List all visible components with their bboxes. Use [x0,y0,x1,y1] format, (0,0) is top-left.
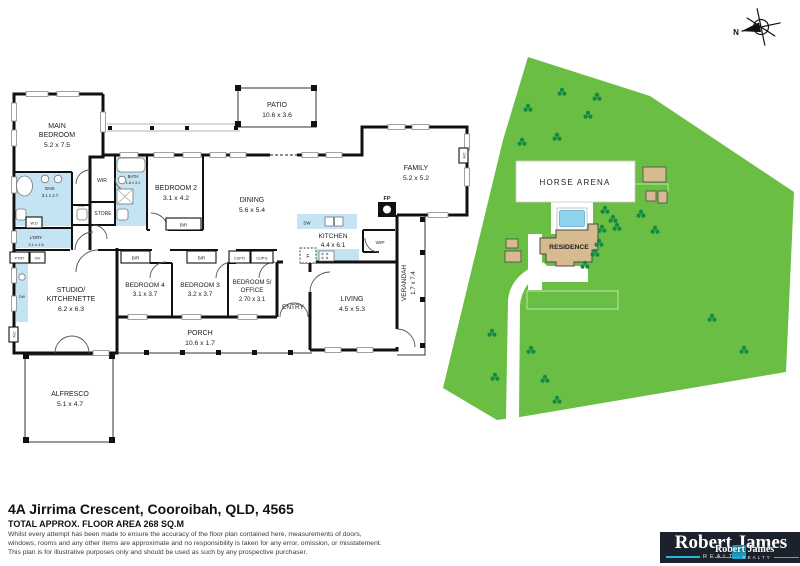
bedroom4-dims: 3.1 x 3.7 [133,291,158,298]
wd-label: W.D [31,222,38,226]
bedroom5-label-2: OFFICE [241,287,264,294]
disclaimer-line: Whilst every attempt has been made to en… [8,530,382,539]
cupd2-label: CUP'D [256,257,267,261]
ac-left-label: A/C [13,331,17,338]
laundry-dims: 3.1 x 1.6 [28,242,44,247]
studio-label-2: KITCHENETTE [47,296,96,303]
agency-logo: Robert James REALTY Robert James REALTY [660,532,800,563]
fp-label: FP [383,196,390,202]
kitchen-dims: 4.4 x 6.1 [321,242,346,249]
floor-area-note: TOTAL APPROX. FLOOR AREA 268 SQ.M [8,519,184,529]
bedroom5-label-1: BEDROOM 5/ [233,279,272,286]
wip-label: WIP [375,240,384,246]
bir-bed2-label: BIR [180,223,188,228]
floor-plan: MAIN BEDROOM 5.2 x 7.5 PATIO 10.6 x 3.6 … [9,85,470,443]
verandah-label: VERANDAH [401,265,408,301]
logo-rule [774,557,799,559]
alfresco-dims: 5.1 x 4.7 [57,401,83,408]
disclaimer: Whilst every attempt has been made to en… [8,530,382,558]
open-structures [25,88,425,442]
bedroom5-dims: 2.70 x 3.1 [239,297,266,303]
studio-label-1: STUDIO/ [57,287,85,294]
laundry-label: L'DRY [30,235,43,240]
verandah-dims: 1.7 x 7.4 [410,271,417,295]
kitchen-label: KITCHEN [319,233,348,240]
main-bedroom-label-1: MAIN [48,123,66,130]
bir-bed3-label: BIR [198,256,206,261]
property-address: 4A Jirrima Crescent, Cooroibah, QLD, 456… [8,501,294,517]
family-label: FAMILY [404,165,429,172]
ens-label: ENS [45,186,54,191]
bedroom4-label: BEDROOM 4 [125,282,165,289]
ac-right-label: A/C [463,152,467,159]
compass-north-label: N [733,28,739,37]
disclaimer-line: This plan is for illustrative purposes o… [8,548,382,557]
agency-logo-small: Robert James REALTY [715,544,799,560]
store-label: STORE [94,211,112,217]
porch-dims: 10.6 x 1.7 [185,340,215,347]
pool [557,208,587,230]
site-boundary [443,57,794,420]
fridge-label: F [306,254,309,260]
living-label: LIVING [341,296,364,303]
horse-arena-label: HORSE ARENA [540,178,611,187]
wir-label: WIR [97,178,107,184]
patio-label: PATIO [267,102,288,109]
bedroom3-label: BEDROOM 3 [180,282,220,289]
logo-rule [715,557,740,559]
bath-label: BATH [128,174,139,179]
logo-rule [666,556,700,558]
ptry-label: P'TRY [15,257,25,261]
agency-logo-small-tagline-row: REALTY [715,555,799,560]
bedroom2-label: BEDROOM 2 [155,185,197,192]
family-dims: 5.2 x 5.2 [403,175,429,182]
alfresco-label: ALFRESCO [51,391,89,398]
dw-island-label: DW [304,221,311,226]
disclaimer-line: windows, rooms and any other items are a… [8,539,382,548]
cupd1-label: CUP'D [234,257,245,261]
bir-bed4-label: BIR [132,256,140,261]
porch-label: PORCH [187,330,212,337]
studio-dims: 6.2 x 6.3 [58,306,84,313]
site-plan: HORSE ARENA RESIDENCE [443,57,794,420]
windows [12,92,470,356]
ov-label: OV [35,256,41,261]
bath-dims: 1.8 x 3.1 [126,181,141,185]
patio-dims: 10.6 x 3.6 [262,112,292,119]
bedroom2-dims: 3.1 x 4.2 [163,195,189,202]
agency-logo-small-tagline: REALTY [742,555,771,560]
main-bedroom-label-2: BEDROOM [39,132,75,139]
residence-label: RESIDENCE [549,244,589,251]
dining-dims: 5.6 x 5.4 [239,207,265,214]
agency-logo-small-brand: Robert James [715,544,799,555]
compass: N [733,4,784,49]
floorplan-canvas: HORSE ARENA RESIDENCE [0,0,800,566]
ens-dims: 3.1 x 2.7 [42,193,59,198]
entry-label: ENTRY [282,304,305,311]
living-dims: 4.5 x 5.3 [339,306,365,313]
dw-bench-label: DW [19,295,26,299]
toil-label: TOIL [77,204,85,208]
main-bedroom-dims: 5.2 x 7.5 [44,142,70,149]
bedroom3-dims: 3.2 x 3.7 [188,291,213,298]
dining-label: DINING [240,197,265,204]
